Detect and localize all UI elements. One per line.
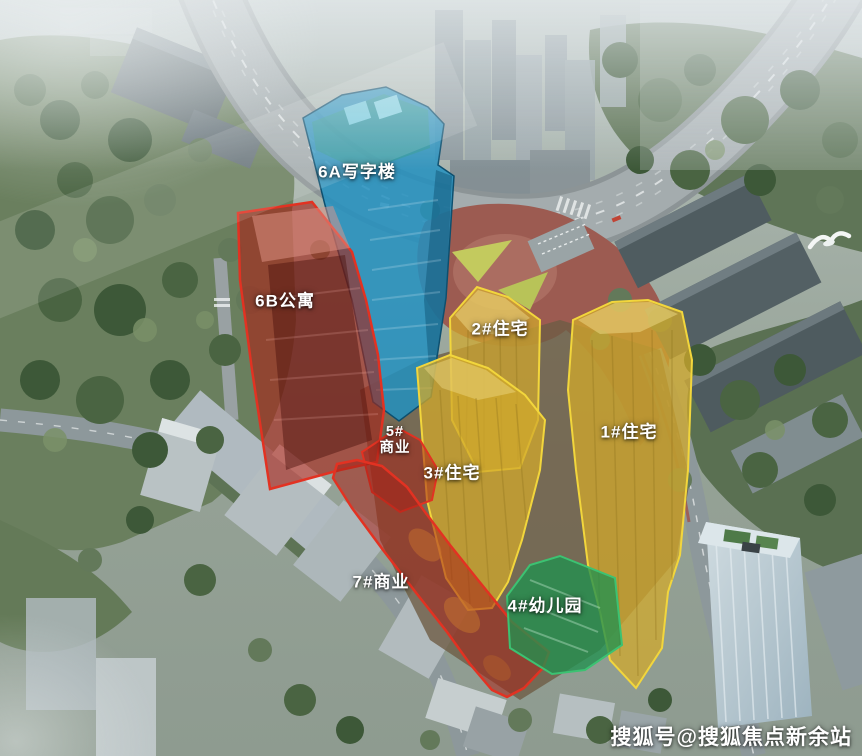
haze-top-right <box>640 0 862 170</box>
watermark: 搜狐号@搜狐焦点新余站 <box>611 721 852 751</box>
aerial-photo-canvas <box>0 0 862 756</box>
aerial-site-plan: 6A写字楼 6B公寓 2#住宅 1#住宅 5# 商业 3#住宅 7#商业 4#幼… <box>0 0 862 756</box>
zone-4-kindergarten <box>507 556 622 674</box>
overlay-4-kindergarten <box>507 556 622 674</box>
fog-bottom-left <box>0 470 320 756</box>
